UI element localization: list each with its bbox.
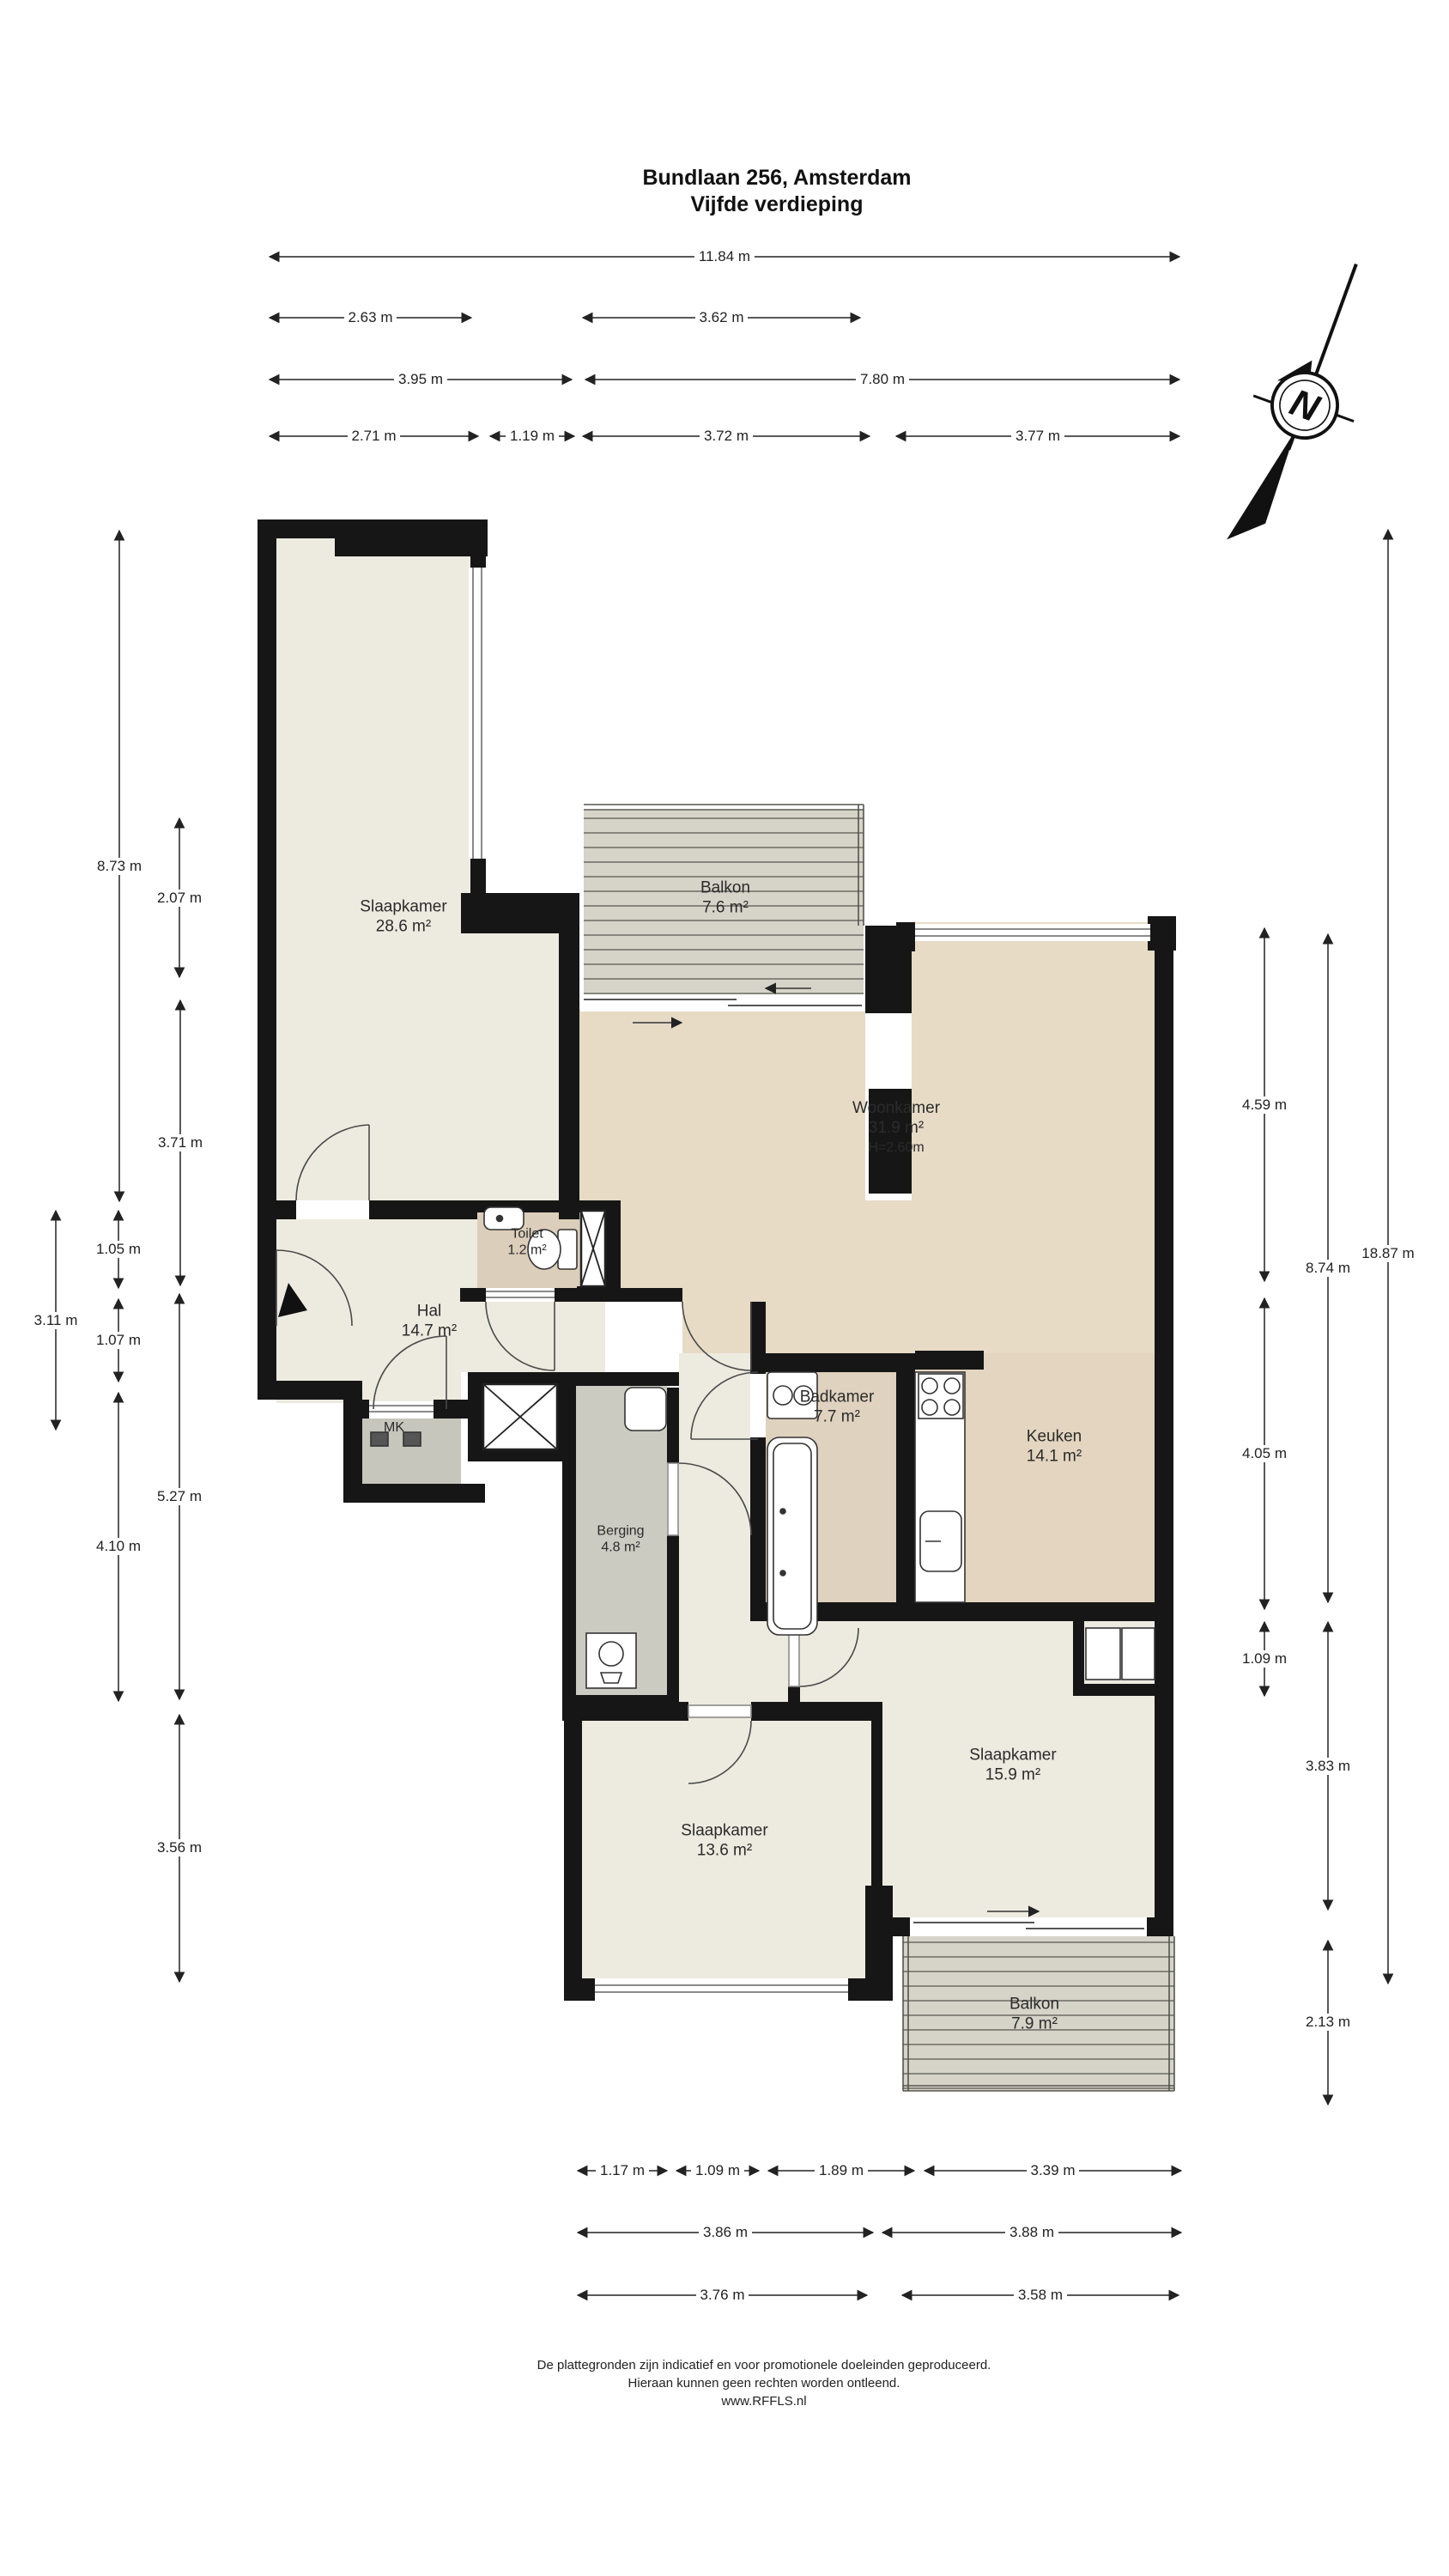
floorplan-page: Bundlaan 256, Amsterdam Vijfde verdiepin…	[0, 0, 1449, 2576]
footer-url: www.RFFLS.nl	[537, 2392, 991, 2410]
meter-icon	[403, 1432, 421, 1446]
appliance-icon	[1122, 1628, 1155, 1680]
disclaimer-line-2: Hieraan kunnen geen rechten worden ontle…	[537, 2374, 991, 2392]
footer-disclaimer: De plattegronden zijn indicatief en voor…	[537, 2356, 991, 2410]
disclaimer-line-1: De plattegronden zijn indicatief en voor…	[537, 2356, 991, 2374]
meter-icon	[371, 1432, 388, 1446]
floors	[267, 529, 1174, 2091]
floorplan-drawing: N	[0, 0, 1449, 2576]
north-compass-icon: N	[1204, 246, 1404, 567]
toilet-sink-icon	[484, 1207, 524, 1230]
bathtub-icon	[767, 1437, 817, 1635]
appliance-icon	[1086, 1628, 1120, 1680]
boiler-icon	[625, 1388, 666, 1431]
